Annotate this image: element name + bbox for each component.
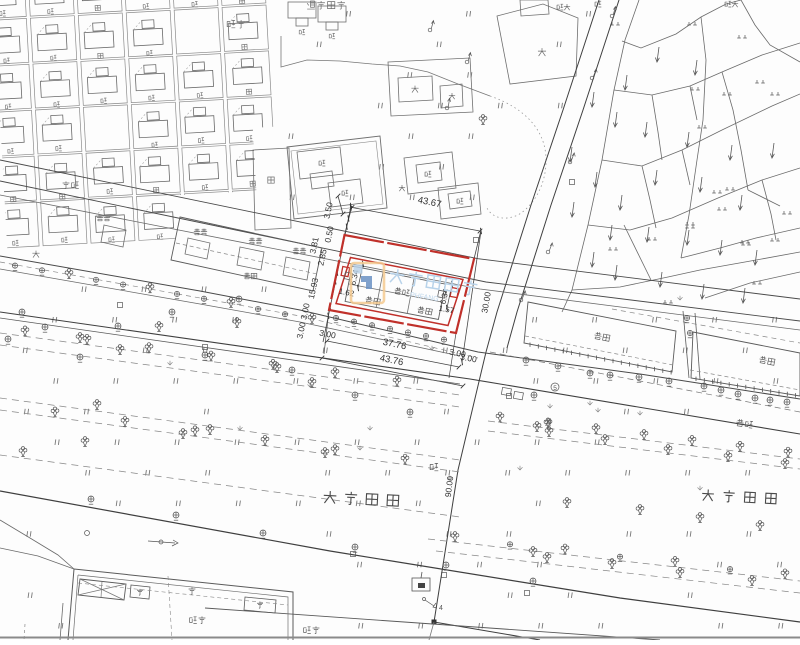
- svg-text:5: 5: [553, 385, 557, 392]
- svg-text:4: 4: [439, 605, 443, 612]
